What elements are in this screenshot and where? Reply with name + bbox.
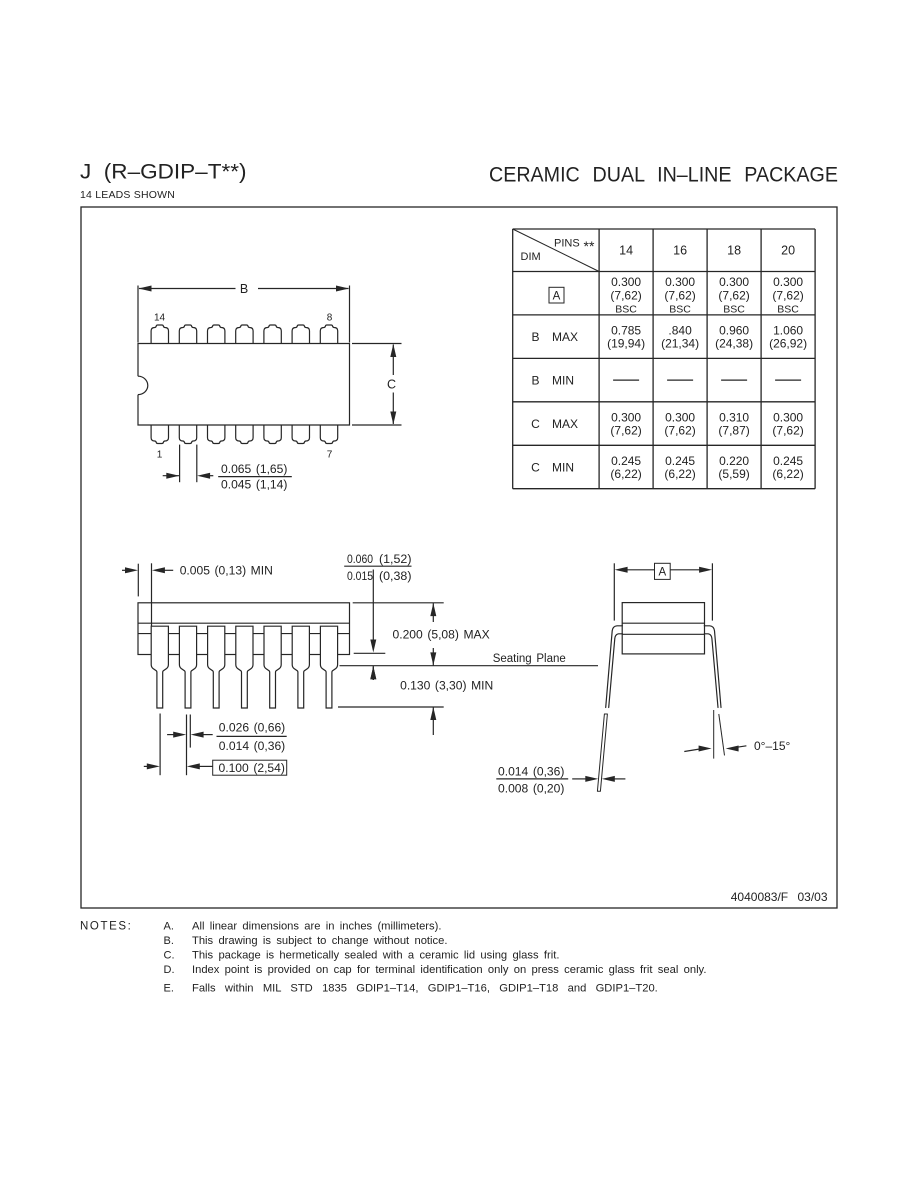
svg-text:A.: A.: [164, 920, 174, 932]
svg-text:(1,52): (1,52): [379, 552, 412, 566]
svg-text:(24,38): (24,38): [715, 336, 753, 350]
svg-text:BSC: BSC: [777, 304, 799, 316]
svg-text:(6,22): (6,22): [610, 467, 641, 481]
svg-text:(19,94): (19,94): [607, 336, 645, 350]
svg-text:MAX: MAX: [552, 330, 578, 344]
svg-text:Index point is provided on cap: Index point is provided on cap for termi…: [192, 964, 706, 976]
svg-text:BSC: BSC: [723, 304, 745, 316]
svg-text:0°–15°: 0°–15°: [754, 739, 790, 753]
svg-text:20: 20: [781, 243, 795, 257]
svg-text:A: A: [553, 290, 561, 302]
svg-text:0.060: 0.060: [347, 552, 373, 566]
svg-text:MIN: MIN: [552, 460, 574, 474]
svg-text:0.045 (1,14): 0.045 (1,14): [221, 478, 287, 492]
svg-text:B.: B.: [164, 935, 174, 947]
svg-text:B: B: [240, 282, 248, 296]
svg-text:This drawing is subject to cha: This drawing is subject to change withou…: [192, 935, 447, 947]
svg-text:0.300: 0.300: [773, 275, 803, 289]
svg-text:0.300: 0.300: [719, 275, 749, 289]
svg-text:(7,62): (7,62): [610, 423, 641, 437]
svg-text:DIM: DIM: [521, 251, 541, 263]
svg-text:1: 1: [157, 450, 163, 461]
svg-text:B: B: [531, 373, 539, 387]
svg-text:C: C: [387, 377, 396, 391]
svg-text:18: 18: [727, 243, 741, 257]
svg-text:J (R–GDIP–T**): J (R–GDIP–T**): [80, 160, 247, 184]
svg-text:(7,62): (7,62): [718, 289, 749, 303]
svg-text:**: **: [584, 238, 595, 254]
svg-text:(5,59): (5,59): [718, 467, 749, 481]
svg-text:0.300: 0.300: [665, 275, 695, 289]
svg-text:0.300: 0.300: [611, 275, 641, 289]
svg-text:This package is hermetically s: This package is hermetically sealed with…: [192, 950, 559, 962]
svg-text:14 LEADS SHOWN: 14 LEADS SHOWN: [80, 189, 175, 201]
svg-text:0.014 (0,36): 0.014 (0,36): [219, 739, 285, 753]
svg-text:Seating Plane: Seating Plane: [493, 653, 566, 665]
svg-text:BSC: BSC: [669, 304, 691, 316]
svg-text:0.100 (2,54): 0.100 (2,54): [219, 761, 285, 775]
svg-text:C.: C.: [164, 950, 175, 962]
svg-text:All linear dimensions are in i: All linear dimensions are in inches (mil…: [192, 920, 441, 932]
svg-text:4040083/F 03/03: 4040083/F 03/03: [731, 890, 828, 904]
svg-text:BSC: BSC: [615, 304, 637, 316]
svg-text:(7,62): (7,62): [610, 289, 641, 303]
svg-text:PINS: PINS: [554, 238, 580, 250]
svg-text:A: A: [658, 567, 666, 579]
svg-text:D.: D.: [164, 964, 175, 976]
svg-text:(21,34): (21,34): [661, 336, 699, 350]
svg-text:8: 8: [327, 313, 333, 324]
svg-text:B: B: [531, 330, 539, 344]
svg-text:0.130 (3,30) MIN: 0.130 (3,30) MIN: [400, 678, 493, 692]
svg-text:C: C: [531, 417, 540, 431]
svg-text:(7,62): (7,62): [772, 289, 803, 303]
svg-text:16: 16: [673, 243, 687, 257]
svg-text:(6,22): (6,22): [772, 467, 803, 481]
svg-text:(7,62): (7,62): [772, 423, 803, 437]
svg-text:0.065 (1,65): 0.065 (1,65): [221, 462, 287, 476]
svg-text:(0,38): (0,38): [379, 569, 412, 583]
svg-text:(7,87): (7,87): [718, 423, 749, 437]
svg-text:0.026 (0,66): 0.026 (0,66): [219, 720, 285, 734]
svg-text:CERAMIC DUAL IN–LINE PACKAGE: CERAMIC DUAL IN–LINE PACKAGE: [489, 163, 838, 187]
svg-text:0.014 (0,36): 0.014 (0,36): [498, 765, 564, 779]
svg-text:NOTES:: NOTES:: [80, 920, 132, 932]
svg-text:MAX: MAX: [552, 417, 578, 431]
svg-text:0.015: 0.015: [347, 569, 373, 583]
svg-text:14: 14: [154, 313, 166, 324]
svg-text:7: 7: [327, 450, 333, 461]
svg-text:MIN: MIN: [552, 373, 574, 387]
svg-text:Falls within MIL STD 1835 GDIP: Falls within MIL STD 1835 GDIP1–T14, GDI…: [192, 982, 658, 994]
svg-text:(26,92): (26,92): [769, 336, 807, 350]
svg-text:14: 14: [619, 243, 633, 257]
svg-text:(7,62): (7,62): [664, 423, 695, 437]
svg-text:(6,22): (6,22): [664, 467, 695, 481]
svg-text:0.008 (0,20): 0.008 (0,20): [498, 781, 564, 795]
svg-text:0.005 (0,13) MIN: 0.005 (0,13) MIN: [180, 563, 273, 577]
svg-text:C: C: [531, 460, 540, 474]
svg-text:(7,62): (7,62): [664, 289, 695, 303]
svg-text:E.: E.: [164, 982, 174, 994]
svg-text:0.200 (5,08) MAX: 0.200 (5,08) MAX: [393, 628, 490, 642]
